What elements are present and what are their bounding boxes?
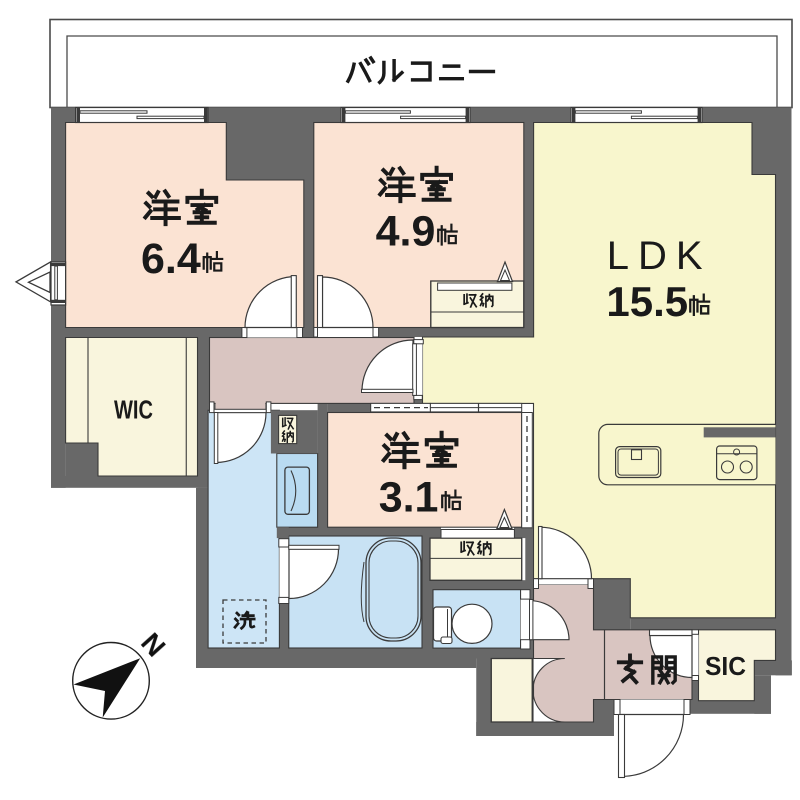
svg-text:4.9: 4.9: [376, 207, 436, 255]
svg-text:3.1: 3.1: [379, 473, 439, 521]
svg-text:WIC: WIC: [114, 395, 153, 425]
svg-text:15.5: 15.5: [606, 278, 688, 325]
svg-text:SIC: SIC: [705, 651, 746, 681]
svg-text:6.4: 6.4: [141, 235, 201, 283]
svg-text:LDK: LDK: [607, 234, 712, 278]
